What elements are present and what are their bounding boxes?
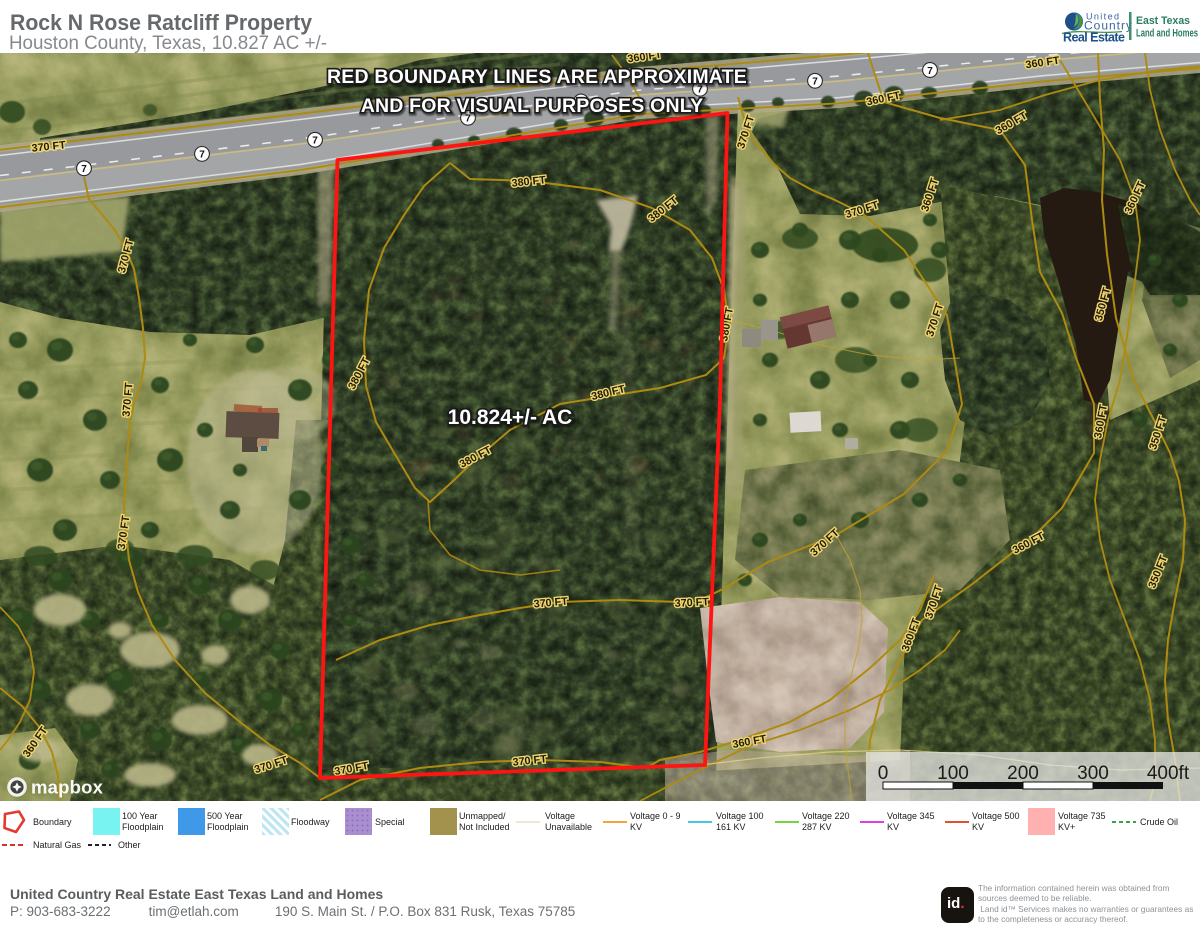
svg-text:Land and Homes: Land and Homes: [1136, 28, 1198, 40]
svg-text:7: 7: [927, 66, 933, 77]
svg-text:400ft: 400ft: [1147, 763, 1190, 784]
svg-text:10.824+/- AC: 10.824+/- AC: [448, 406, 573, 429]
svg-text:7: 7: [81, 164, 87, 175]
svg-text:200: 200: [1007, 763, 1039, 784]
svg-text:East Texas: East Texas: [1136, 15, 1190, 27]
svg-text:Real Estate: Real Estate: [1063, 31, 1125, 45]
svg-text:370 FT: 370 FT: [674, 596, 709, 610]
svg-text:7: 7: [312, 136, 318, 147]
svg-text:7: 7: [812, 77, 818, 88]
svg-text:0: 0: [878, 763, 889, 784]
svg-text:AND FOR VISUAL PURPOSES ONLY: AND FOR VISUAL PURPOSES ONLY: [361, 95, 704, 117]
svg-text:mapbox: mapbox: [31, 777, 104, 798]
svg-text:7: 7: [199, 150, 205, 161]
svg-text:RED BOUNDARY LINES ARE APPROXI: RED BOUNDARY LINES ARE APPROXIMATE: [327, 66, 747, 88]
svg-text:Houston County, Texas, 10.827: Houston County, Texas, 10.827 AC +/-: [9, 32, 327, 53]
svg-text:100: 100: [937, 763, 969, 784]
svg-text:300: 300: [1077, 763, 1109, 784]
